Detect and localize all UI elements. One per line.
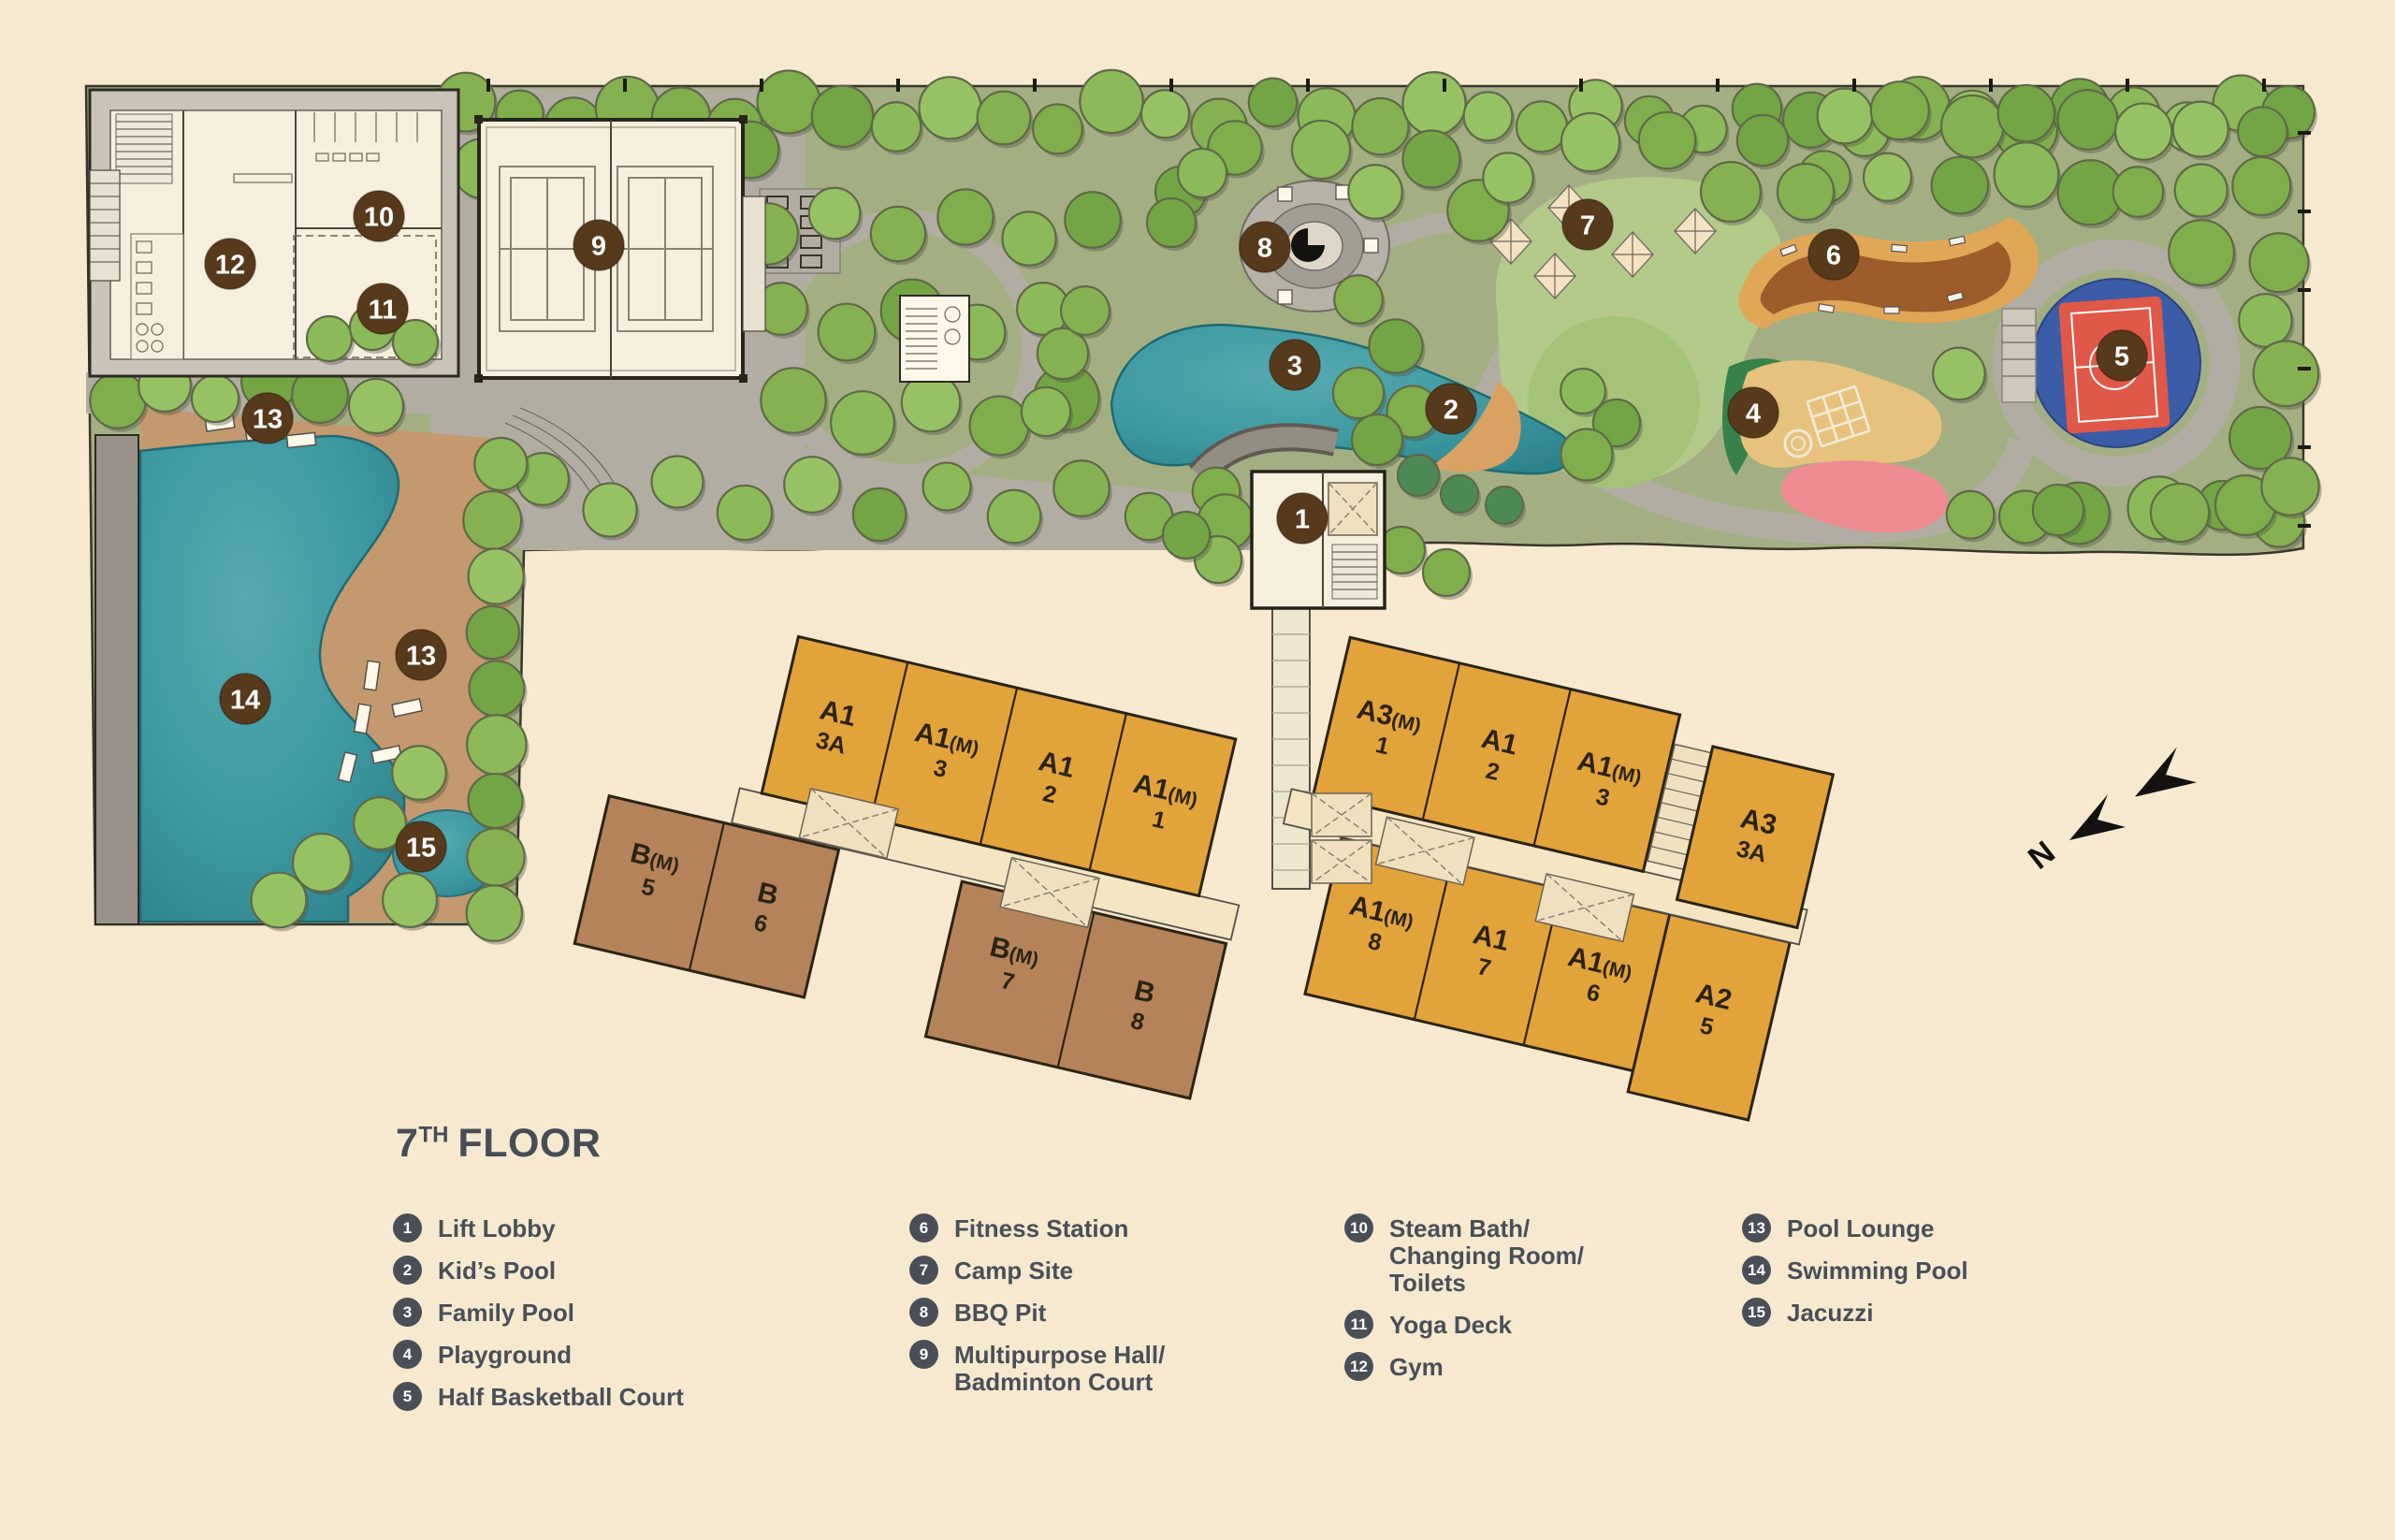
legend-item-13: 13Pool Lounge	[1742, 1213, 2154, 1242]
legend-column: 1Lift Lobby2Kid’s Pool3Family Pool4Playg…	[393, 1213, 805, 1424]
legend-item-label: Family Pool	[438, 1298, 574, 1327]
legend-item-6: 6Fitness Station	[909, 1213, 1321, 1242]
legend-item-number: 13	[1742, 1213, 1771, 1242]
legend-item-4: 4Playground	[393, 1340, 805, 1369]
legend-item-12: 12Gym	[1344, 1352, 1756, 1381]
legend-item-label: Gym	[1389, 1352, 1444, 1381]
legend: 1Lift Lobby2Kid’s Pool3Family Pool4Playg…	[0, 0, 2395, 1540]
legend-item-number: 14	[1742, 1256, 1771, 1285]
legend-item-label: Yoga Deck	[1389, 1310, 1512, 1339]
legend-item-number: 15	[1742, 1298, 1771, 1327]
legend-item-label: Swimming Pool	[1787, 1256, 1968, 1285]
legend-item-10: 10Steam Bath/ Changing Room/ Toilets	[1344, 1213, 1756, 1297]
legend-item-1: 1Lift Lobby	[393, 1213, 805, 1242]
legend-item-number: 8	[909, 1298, 938, 1327]
legend-item-9: 9Multipurpose Hall/ Badminton Court	[909, 1340, 1321, 1396]
legend-item-15: 15Jacuzzi	[1742, 1298, 2154, 1327]
floor-plan-page: A1 3A A1(M) 3 A1 2 A1(M) 1 B(M) 5 B 6 B(…	[0, 0, 2395, 1540]
legend-item-label: Half Basketball Court	[438, 1382, 684, 1411]
legend-item-label: Kid’s Pool	[438, 1256, 556, 1285]
legend-item-7: 7Camp Site	[909, 1256, 1321, 1285]
legend-item-label: BBQ Pit	[954, 1298, 1046, 1327]
legend-item-5: 5Half Basketball Court	[393, 1382, 805, 1411]
legend-item-number: 9	[909, 1340, 938, 1369]
legend-item-label: Fitness Station	[954, 1213, 1128, 1242]
legend-column: 10Steam Bath/ Changing Room/ Toilets11Yo…	[1344, 1213, 1756, 1394]
legend-item-number: 5	[393, 1382, 422, 1411]
legend-item-number: 11	[1344, 1310, 1373, 1339]
legend-item-2: 2Kid’s Pool	[393, 1256, 805, 1285]
legend-item-11: 11Yoga Deck	[1344, 1310, 1756, 1339]
legend-item-8: 8BBQ Pit	[909, 1298, 1321, 1327]
legend-item-label: Jacuzzi	[1787, 1298, 1874, 1327]
legend-item-number: 10	[1344, 1213, 1373, 1242]
legend-item-number: 6	[909, 1213, 938, 1242]
legend-column: 6Fitness Station7Camp Site8BBQ Pit9Multi…	[909, 1213, 1321, 1409]
legend-item-label: Pool Lounge	[1787, 1213, 1934, 1242]
legend-item-label: Playground	[438, 1340, 572, 1369]
legend-item-number: 1	[393, 1213, 422, 1242]
legend-item-label: Steam Bath/ Changing Room/ Toilets	[1389, 1213, 1584, 1297]
legend-item-14: 14Swimming Pool	[1742, 1256, 2154, 1285]
legend-item-label: Multipurpose Hall/ Badminton Court	[954, 1340, 1165, 1396]
legend-item-3: 3Family Pool	[393, 1298, 805, 1327]
legend-item-number: 3	[393, 1298, 422, 1327]
legend-item-number: 2	[393, 1256, 422, 1285]
legend-item-label: Camp Site	[954, 1256, 1073, 1285]
legend-item-number: 12	[1344, 1352, 1373, 1381]
legend-item-number: 7	[909, 1256, 938, 1285]
legend-item-label: Lift Lobby	[438, 1213, 556, 1242]
legend-item-number: 4	[393, 1340, 422, 1369]
legend-column: 13Pool Lounge14Swimming Pool15Jacuzzi	[1742, 1213, 2154, 1340]
